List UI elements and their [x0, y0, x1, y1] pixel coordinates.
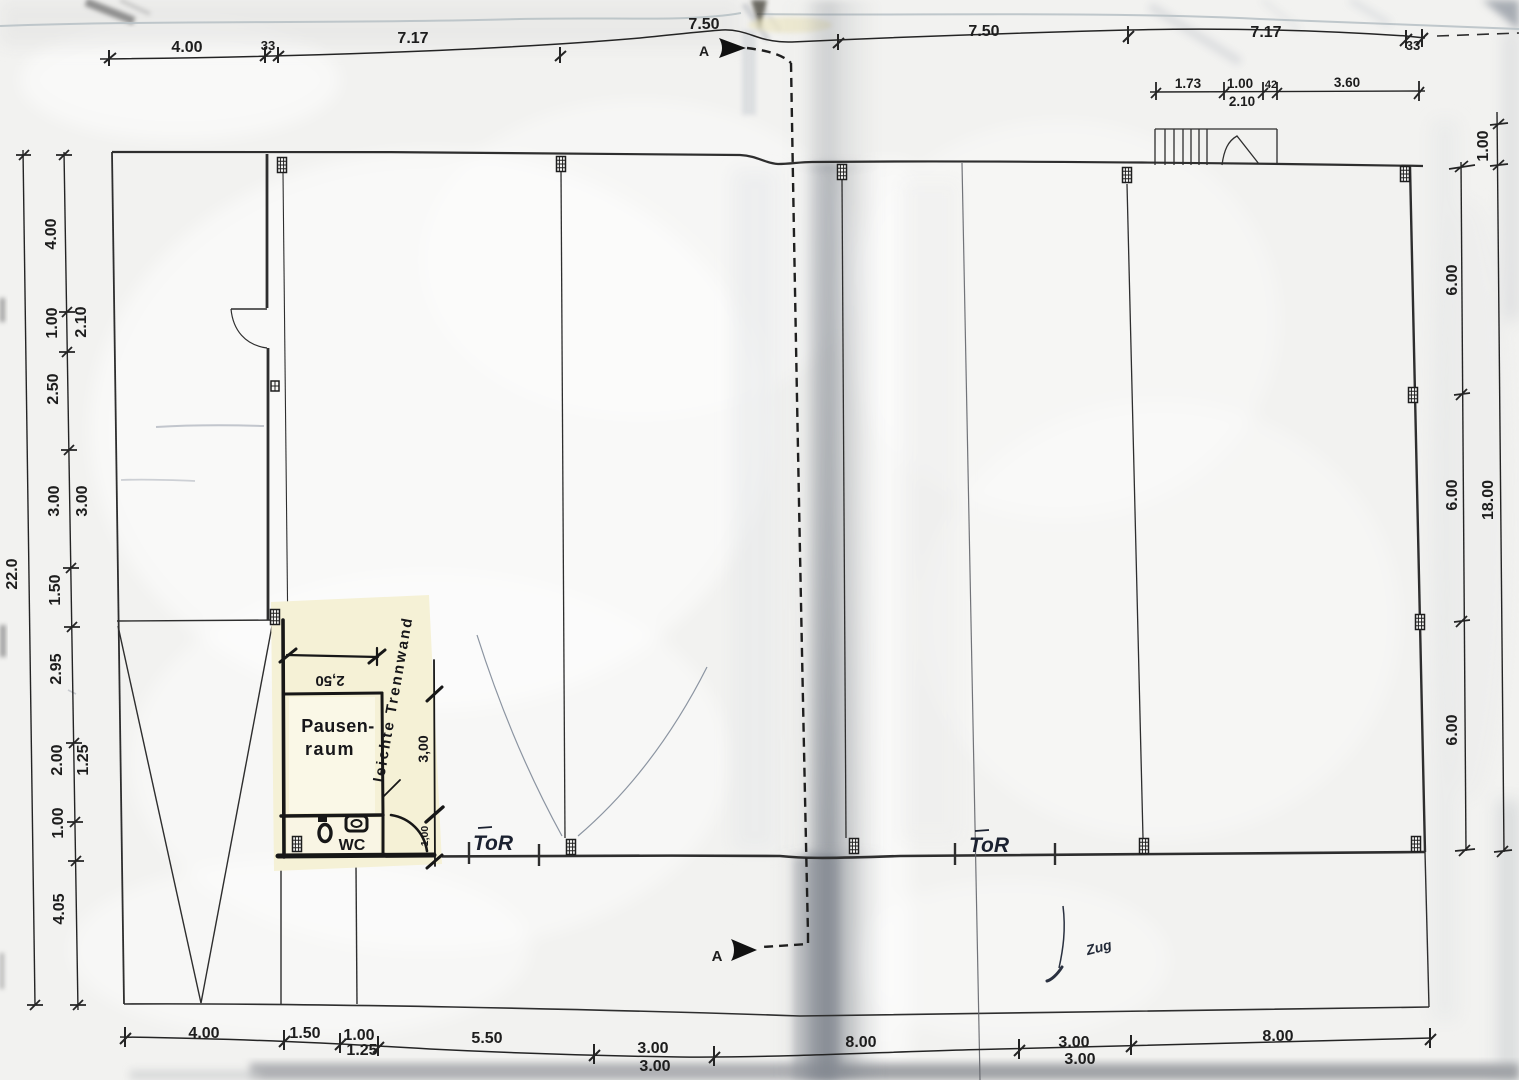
svg-text:5.50: 5.50: [471, 1030, 502, 1047]
svg-text:22.0: 22.0: [4, 558, 21, 589]
svg-text:6.00: 6.00: [1444, 264, 1461, 295]
svg-text:2.10: 2.10: [73, 306, 90, 337]
svg-text:33: 33: [261, 38, 275, 53]
svg-text:7.50: 7.50: [688, 16, 719, 33]
svg-text:2.00: 2.00: [49, 744, 66, 775]
svg-text:8.00: 8.00: [845, 1034, 876, 1051]
svg-text:1.00: 1.00: [1227, 76, 1253, 91]
svg-text:ToR: ToR: [473, 832, 514, 855]
svg-text:1.00: 1.00: [1475, 130, 1492, 161]
svg-text:3.00: 3.00: [46, 485, 63, 516]
svg-text:raum: raum: [305, 739, 355, 759]
svg-text:7.17: 7.17: [1250, 24, 1281, 41]
svg-text:1.00: 1.00: [44, 307, 61, 338]
svg-text:3.60: 3.60: [1334, 75, 1360, 90]
svg-text:7.50: 7.50: [968, 23, 999, 40]
svg-text:4.00: 4.00: [171, 39, 202, 56]
svg-text:4.00: 4.00: [188, 1025, 219, 1042]
svg-text:2.10: 2.10: [1229, 94, 1255, 109]
svg-text:3.00: 3.00: [639, 1058, 670, 1075]
svg-text:1.50: 1.50: [289, 1025, 320, 1042]
svg-text:1.73: 1.73: [1175, 76, 1202, 91]
svg-text:WC: WC: [339, 837, 366, 854]
svg-text:1,00: 1,00: [419, 826, 431, 847]
svg-text:ToR: ToR: [969, 834, 1010, 857]
svg-text:3.00: 3.00: [1064, 1051, 1095, 1068]
svg-text:2.50: 2.50: [45, 373, 62, 404]
svg-text:4.05: 4.05: [51, 893, 68, 924]
svg-text:1.25: 1.25: [346, 1042, 377, 1059]
svg-text:1.00: 1.00: [50, 807, 67, 838]
svg-text:42: 42: [1265, 79, 1277, 91]
svg-text:A: A: [699, 43, 709, 59]
svg-text:1.25: 1.25: [75, 744, 92, 775]
svg-text:4.00: 4.00: [43, 218, 60, 249]
svg-text:3,00: 3,00: [415, 735, 431, 762]
svg-text:A: A: [712, 948, 723, 965]
svg-text:3.00: 3.00: [1058, 1034, 1089, 1051]
svg-text:3.00: 3.00: [637, 1040, 668, 1057]
svg-text:2,50: 2,50: [315, 672, 344, 689]
svg-text:2.95: 2.95: [48, 653, 65, 684]
svg-text:3.00: 3.00: [74, 485, 91, 516]
svg-text:18.00: 18.00: [1480, 480, 1497, 520]
svg-text:1.50: 1.50: [47, 574, 64, 605]
svg-text:6.00: 6.00: [1444, 479, 1461, 510]
svg-text:6.00: 6.00: [1444, 714, 1461, 745]
svg-text:Pausen-: Pausen-: [301, 716, 375, 736]
svg-text:7.17: 7.17: [397, 30, 428, 47]
svg-text:8.00: 8.00: [1262, 1028, 1293, 1045]
svg-text:33: 33: [1406, 38, 1420, 53]
